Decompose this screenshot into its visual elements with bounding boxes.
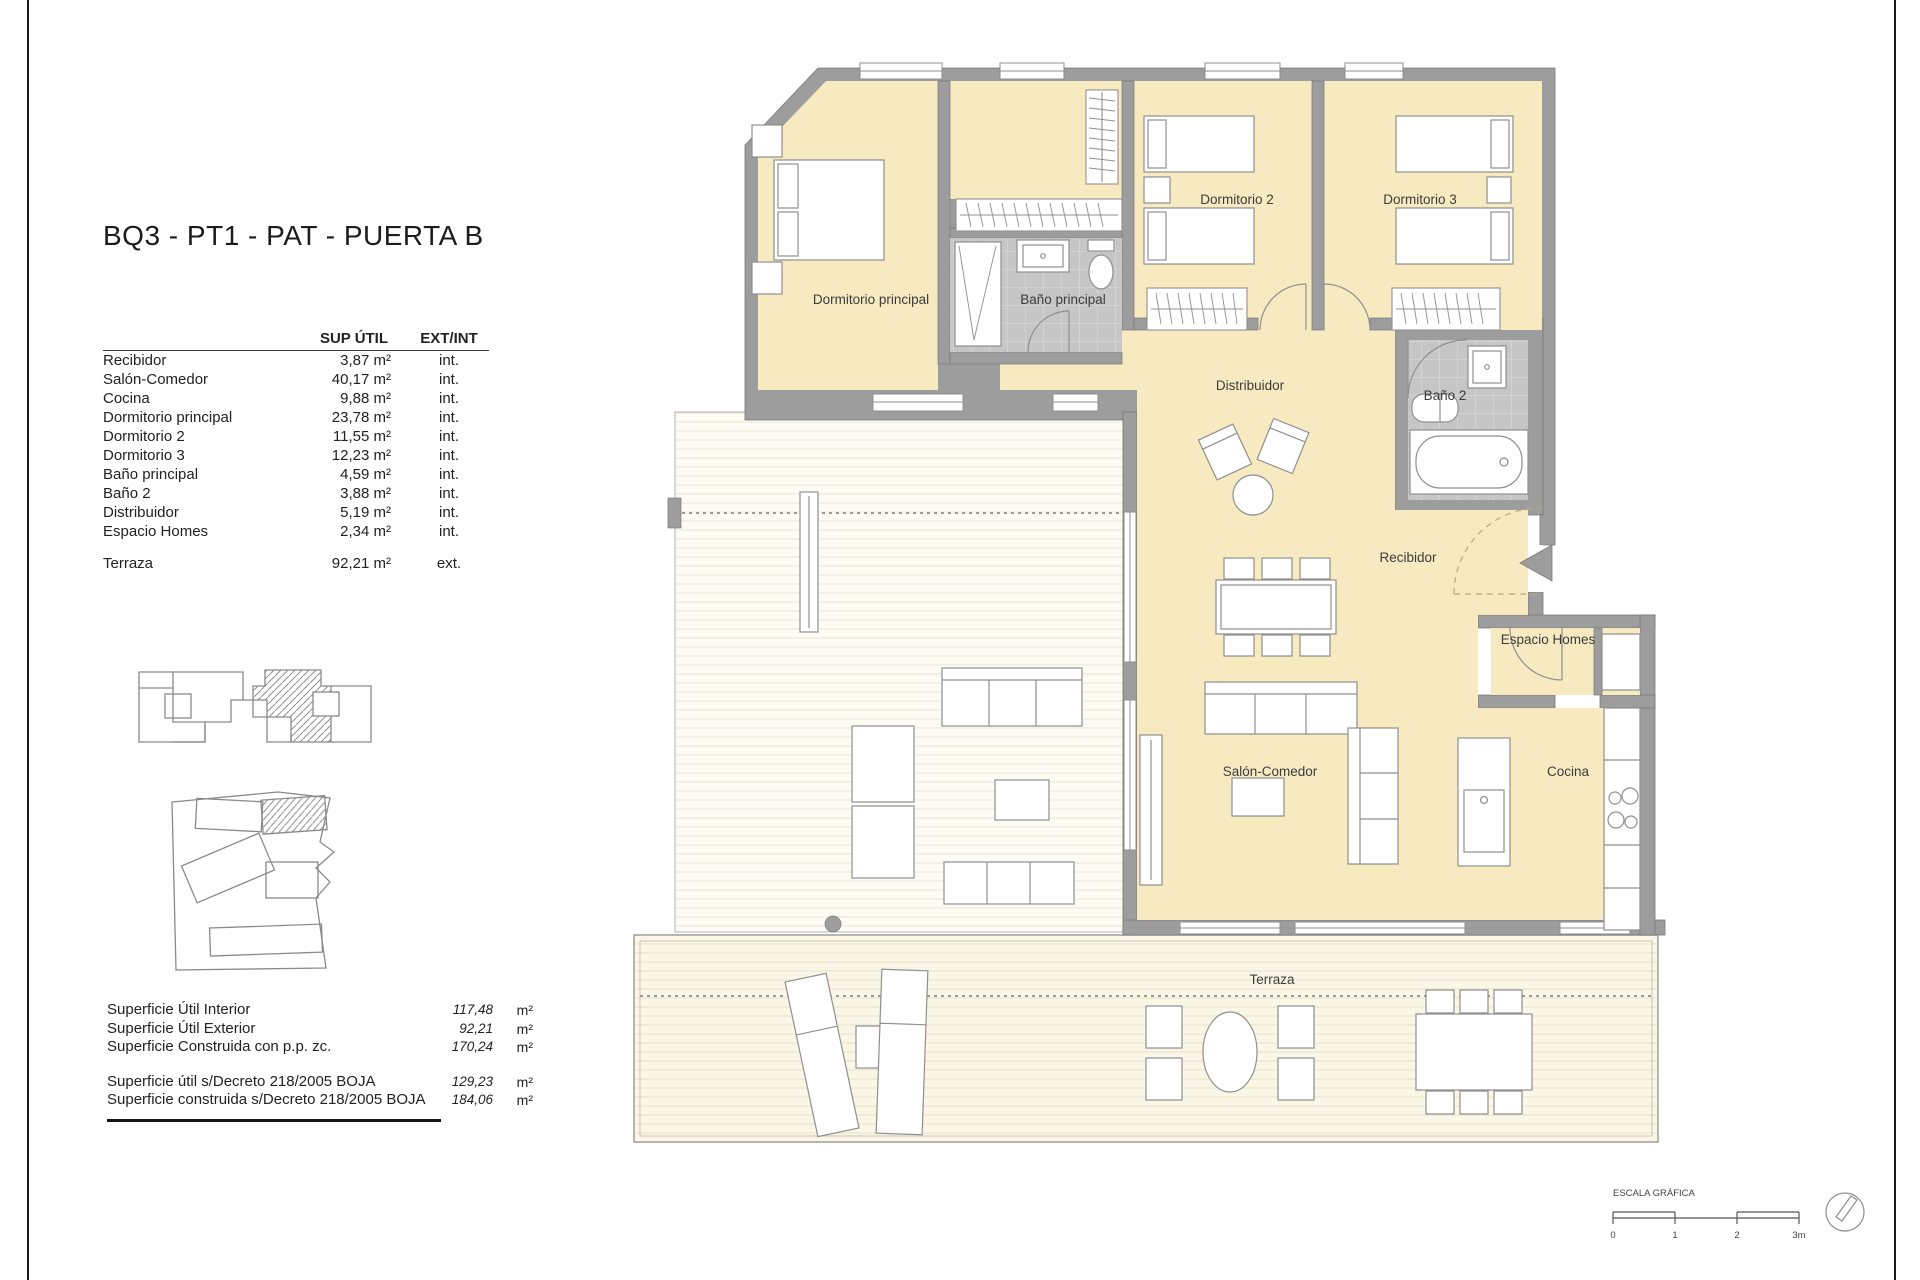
sheet-border-left — [27, 0, 29, 1280]
table-row: Espacio Homes2,34 m²int. — [103, 522, 489, 541]
scale-bar: ESCALA GRÁFICA 0 1 2 3m — [1595, 1180, 1885, 1260]
room-label-bano-2: Baño 2 — [1424, 388, 1467, 403]
header-sup-util: SUP ÚTIL — [299, 330, 409, 347]
summary-underline — [107, 1119, 441, 1122]
table-row: Dormitorio principal23,78 m²int. — [103, 408, 489, 427]
surface-summary: Superficie Útil Interior117,48m² Superfi… — [107, 1001, 533, 1122]
room-label-distribuidor: Distribuidor — [1216, 378, 1285, 393]
table-row: Dormitorio 211,55 m²int. — [103, 427, 489, 446]
table-row: Dormitorio 312,23 m²int. — [103, 446, 489, 465]
floor-plan: Dormitorio principal Baño principal Dorm… — [600, 40, 1700, 1170]
summary-row: Superficie construida s/Decreto 218/2005… — [107, 1091, 533, 1110]
summary-row: Superficie útil s/Decreto 218/2005 BOJA1… — [107, 1073, 533, 1092]
table-row: Cocina9,88 m²int. — [103, 389, 489, 408]
summary-row: Superficie Útil Exterior92,21m² — [107, 1020, 533, 1039]
table-row: Baño 23,88 m²int. — [103, 484, 489, 503]
room-label-espacio-homes: Espacio Homes — [1501, 632, 1596, 647]
room-label-salon-comedor: Salón-Comedor — [1223, 764, 1318, 779]
key-plan-site — [158, 790, 353, 972]
summary-row: Superficie Construida con p.p. zc.170,24… — [107, 1038, 533, 1057]
scale-tick-0: 0 — [1610, 1230, 1615, 1241]
room-label-recibidor: Recibidor — [1379, 550, 1437, 565]
room-label-dormitorio-principal: Dormitorio principal — [813, 292, 929, 307]
header-ext-int: EXT/INT — [409, 330, 489, 347]
scale-tick-1: 1 — [1672, 1230, 1677, 1241]
scale-title: ESCALA GRÁFICA — [1613, 1188, 1695, 1199]
room-label-bano-principal: Baño principal — [1020, 292, 1106, 307]
scale-ruler — [1613, 1212, 1799, 1224]
north-indicator-icon — [1826, 1193, 1864, 1231]
areas-table-header: SUP ÚTIL EXT/INT — [103, 330, 489, 351]
column — [825, 916, 841, 932]
table-row: Baño principal4,59 m²int. — [103, 465, 489, 484]
sheet-border-right — [1894, 0, 1896, 1280]
room-label-dormitorio-3: Dormitorio 3 — [1383, 192, 1457, 207]
table-row: Recibidor3,87 m²int. — [103, 351, 489, 370]
summary-row: Superficie Útil Interior117,48m² — [107, 1001, 533, 1020]
room-label-cocina: Cocina — [1547, 764, 1590, 779]
room-label-dormitorio-2: Dormitorio 2 — [1200, 192, 1274, 207]
scale-tick-3m: 3m — [1792, 1230, 1805, 1241]
key-plan-building — [135, 662, 375, 748]
header-spacer — [103, 330, 299, 347]
table-row: Distribuidor5,19 m²int. — [103, 503, 489, 522]
table-row-terraza: Terraza92,21 m²ext. — [103, 554, 489, 573]
scale-tick-2: 2 — [1734, 1230, 1739, 1241]
table-row: Salón-Comedor40,17 m²int. — [103, 370, 489, 389]
room-label-terraza: Terraza — [1249, 972, 1295, 987]
page-title: BQ3 - PT1 - PAT - PUERTA B — [103, 220, 484, 252]
areas-table: SUP ÚTIL EXT/INT Recibidor3,87 m²int. Sa… — [103, 330, 489, 573]
